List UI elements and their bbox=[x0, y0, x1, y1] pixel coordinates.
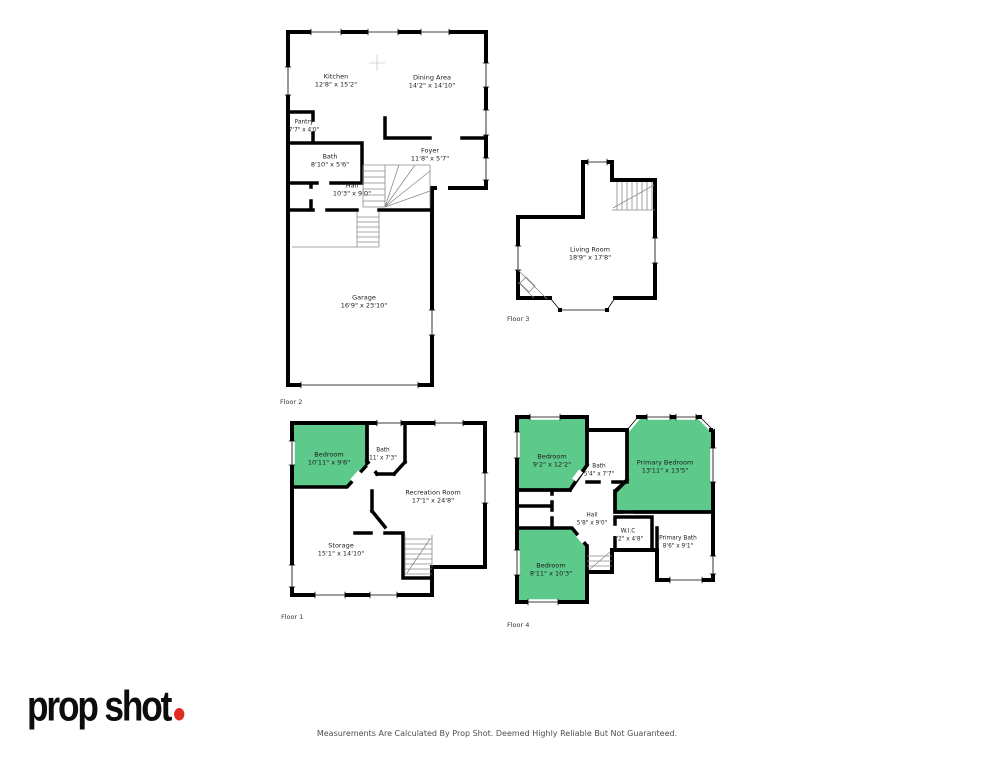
room-dims: 13'11" x 13'5" bbox=[642, 467, 688, 475]
room-name: Bath bbox=[322, 153, 337, 161]
room-dims: 11' x 7'3" bbox=[369, 455, 397, 461]
floor-2-tag: Floor 2 bbox=[280, 398, 302, 406]
room-label-primary-bath: Primary Bath 8'6" x 9'1" bbox=[659, 535, 697, 550]
room-dims: 16'9" x 23'10" bbox=[341, 302, 387, 310]
room-name: Dining Area bbox=[413, 74, 451, 82]
room-name: Bath bbox=[376, 447, 389, 453]
room-label-primary-bedroom: Primary Bedroom 13'11" x 13'5" bbox=[637, 459, 694, 476]
room-name: W.I.C bbox=[621, 528, 636, 534]
room-label-bedroom-bottom: Bedroom 8'11" x 10'3" bbox=[530, 562, 572, 579]
room-dims: 8'6" x 9'1" bbox=[663, 543, 693, 549]
room-label-hall-floor4: Hall 5'8" x 9'0" bbox=[577, 512, 607, 527]
room-label-wic: W.I.C 5'2" x 4'8" bbox=[613, 528, 643, 543]
room-name: Bedroom bbox=[537, 453, 566, 461]
floor3-walls bbox=[518, 162, 655, 310]
logo-text: prop shot bbox=[27, 682, 170, 730]
room-dims: 5'4" x 7'7" bbox=[584, 471, 614, 477]
floor-1-tag: Floor 1 bbox=[281, 613, 303, 621]
room-label-storage: Storage 15'1" x 14'10" bbox=[318, 542, 364, 559]
room-name: Living Room bbox=[570, 246, 610, 254]
room-dims: 15'1" x 14'10" bbox=[318, 550, 364, 558]
room-name: Bedroom bbox=[314, 451, 343, 459]
room-name: Primary Bedroom bbox=[637, 459, 694, 467]
room-label-bedroom-floor1: Bedroom 10'11" x 9'6" bbox=[308, 451, 350, 468]
room-dims: 5'8" x 9'0" bbox=[577, 520, 607, 526]
floorplan-page: { "branding": {"logo": "prop shot", "dot… bbox=[0, 0, 994, 768]
room-label-bath-floor2: Bath 8'10" x 5'6" bbox=[311, 153, 349, 170]
room-label-bedroom-top: Bedroom 9'2" x 12'2" bbox=[533, 453, 571, 470]
floor-3-drawing bbox=[510, 158, 660, 326]
room-name: Pantry bbox=[295, 119, 314, 125]
propshot-logo: prop shot bbox=[27, 682, 184, 731]
floor-2-plan: Kitchen 12'8" x 15'2" Dining Area 14'2" … bbox=[283, 25, 493, 415]
room-dims: 17'1" x 24'8" bbox=[412, 497, 454, 505]
floor3-fireplace bbox=[518, 270, 547, 299]
floor-4-tag: Floor 4 bbox=[507, 621, 529, 629]
room-name: Storage bbox=[328, 542, 353, 550]
floor-3-tag: Floor 3 bbox=[507, 315, 529, 323]
room-name: Hall bbox=[346, 182, 358, 190]
room-name: Bedroom bbox=[536, 562, 565, 570]
room-label-foyer: Foyer 11'8" x 5'7" bbox=[411, 147, 449, 164]
floor-3-plan: Living Room 18'9" x 17'8" Floor 3 bbox=[510, 158, 660, 326]
room-dims: 18'9" x 17'8" bbox=[569, 254, 611, 262]
floor-1-drawing bbox=[285, 415, 490, 620]
room-name: Foyer bbox=[421, 147, 439, 155]
room-name: Bath bbox=[592, 463, 605, 469]
room-label-dining-area: Dining Area 14'2" x 14'10" bbox=[409, 74, 455, 91]
floor-1-plan: Bedroom 10'11" x 9'6" Bath 11' x 7'3" Re… bbox=[285, 415, 490, 620]
disclaimer-text: Measurements Are Calculated By Prop Shot… bbox=[0, 729, 994, 738]
room-label-hall-floor2: Hall 10'3" x 9'0" bbox=[333, 182, 371, 199]
room-name: Garage bbox=[352, 294, 376, 302]
room-label-garage: Garage 16'9" x 23'10" bbox=[341, 294, 387, 311]
room-label-recreation-room: Recreation Room 17'1" x 24'8" bbox=[405, 489, 460, 506]
room-label-pantry: Pantry 7'7" x 4'0" bbox=[289, 119, 319, 134]
room-label-kitchen: Kitchen 12'8" x 15'2" bbox=[315, 73, 357, 90]
room-name: Recreation Room bbox=[405, 489, 460, 497]
room-dims: 8'10" x 5'6" bbox=[311, 161, 349, 169]
logo-dot bbox=[174, 708, 184, 720]
room-dims: 5'2" x 4'8" bbox=[613, 536, 643, 542]
room-label-bath-floor4: Bath 5'4" x 7'7" bbox=[584, 463, 614, 478]
floor1-stairs bbox=[405, 535, 432, 575]
floor4-stairs bbox=[587, 552, 612, 570]
room-dims: 10'11" x 9'6" bbox=[308, 459, 350, 467]
floor-4-plan: Bedroom 9'2" x 12'2" Bath 5'4" x 7'7" Pr… bbox=[512, 410, 717, 628]
room-label-living-room: Living Room 18'9" x 17'8" bbox=[569, 246, 611, 263]
room-dims: 12'8" x 15'2" bbox=[315, 81, 357, 89]
floor3-stairs bbox=[612, 182, 655, 210]
room-dims: 10'3" x 9'0" bbox=[333, 190, 371, 198]
room-dims: 14'2" x 14'10" bbox=[409, 82, 455, 90]
room-dims: 9'2" x 12'2" bbox=[533, 461, 571, 469]
room-dims: 8'11" x 10'3" bbox=[530, 570, 572, 578]
room-name: Kitchen bbox=[324, 73, 348, 81]
floor-4-drawing bbox=[512, 410, 717, 628]
room-name: Hall bbox=[586, 512, 597, 518]
room-dims: 7'7" x 4'0" bbox=[289, 127, 319, 133]
room-name: Primary Bath bbox=[659, 535, 697, 541]
room-dims: 11'8" x 5'7" bbox=[411, 155, 449, 163]
room-label-bath-floor1: Bath 11' x 7'3" bbox=[369, 447, 397, 462]
